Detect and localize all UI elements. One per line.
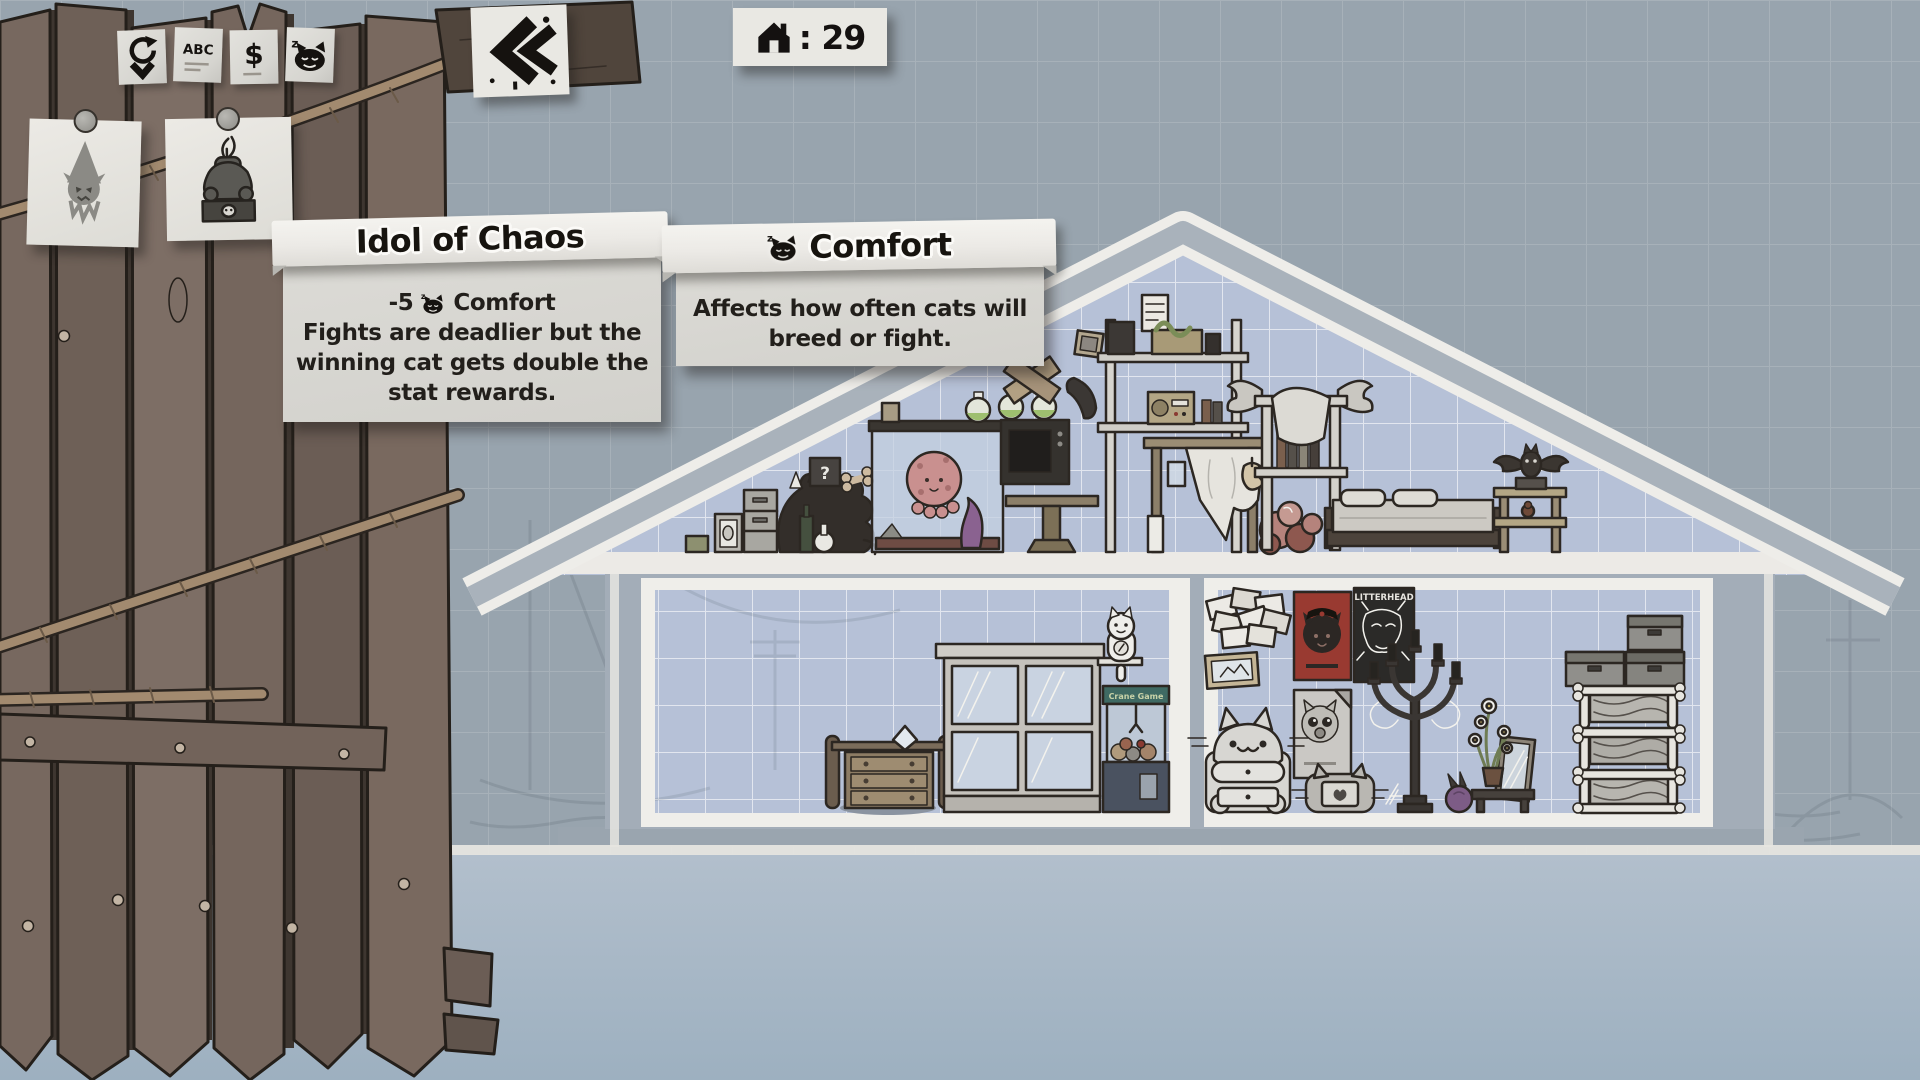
tooltip-stat-title: Comfort <box>809 225 952 265</box>
furniture-china-cabinet[interactable] <box>936 644 1104 812</box>
press-machine <box>1108 322 1134 354</box>
comfort-cat-icon: z <box>420 292 446 315</box>
furniture-file-cabinet[interactable] <box>744 490 777 552</box>
tooltip-item-desc: Fights are deadlier but the winning cat … <box>296 318 648 408</box>
draped-cloth <box>1272 388 1330 445</box>
tab-sort-alphabetical[interactable]: ABC <box>173 27 223 83</box>
tooltip-stat-body: Affects how often cats will breed or fig… <box>676 258 1044 366</box>
furniture-stove-cabinet[interactable] <box>1001 420 1069 484</box>
furniture-claw-machine[interactable]: Crane Game <box>1103 686 1169 812</box>
svg-text:z: z <box>291 36 298 50</box>
attic-floor-band <box>518 552 1848 574</box>
tab-sort-comfort[interactable]: z <box>285 27 335 83</box>
game-screen: ? <box>0 0 1920 1080</box>
furniture-small-picture-frame[interactable] <box>1205 652 1259 689</box>
milk-bottle <box>1148 516 1163 552</box>
furniture-mystery-box[interactable]: ? <box>810 458 840 486</box>
idol-statue-icon <box>176 128 282 230</box>
furniture-ghost-picture[interactable] <box>715 514 742 552</box>
sleeping-cat-icon: z <box>289 33 330 76</box>
furniture-bone-shelf[interactable] <box>1573 683 1685 813</box>
furniture-aquarium[interactable] <box>869 403 1006 552</box>
tab-sort-price[interactable]: $ <box>230 30 279 85</box>
stat-prefix: -5 <box>389 288 414 318</box>
tooltip-item-title: Idol of Chaos <box>355 217 584 261</box>
furniture-small-green-box[interactable] <box>686 536 708 552</box>
mystery-box-label: ? <box>820 464 830 484</box>
svg-text:ABC: ABC <box>183 41 214 58</box>
item-card-hooded-cat[interactable] <box>26 119 141 248</box>
house-icon <box>755 19 793 55</box>
hooded-cat-icon <box>47 134 121 232</box>
furniture-kitten-poster[interactable] <box>1294 690 1351 778</box>
house-counter: : 29 <box>733 8 887 66</box>
svg-text:z: z <box>767 234 773 245</box>
tooltip-item-statline: -5 z Comfort <box>389 288 556 318</box>
pin-icon <box>73 109 98 134</box>
tooltip-stat-desc: Affects how often cats will breed or fig… <box>693 294 1027 354</box>
back-button[interactable] <box>470 4 569 97</box>
house-foundation <box>558 827 1804 847</box>
claw-machine-marquee: Crane Game <box>1109 692 1164 701</box>
comfort-cat-icon: z <box>766 232 801 263</box>
pinned-scroll <box>1142 295 1168 331</box>
pin-icon <box>216 107 240 131</box>
circular-arrow-icon <box>121 33 163 80</box>
tooltip-item-body: -5 z Comfort Fights are deadlier but the… <box>283 252 661 422</box>
octopus <box>907 452 961 506</box>
furniture-revolutionary-cat-poster[interactable] <box>1294 592 1351 680</box>
svg-text:$: $ <box>244 38 264 71</box>
double-chevron-left-icon <box>476 10 565 93</box>
stat-name: Comfort <box>453 288 555 318</box>
furniture-litterhead-poster[interactable]: LITTERHEAD <box>1354 588 1414 682</box>
tooltip-stat-banner: z Comfort <box>662 219 1057 274</box>
dollar-label: $ <box>234 34 275 81</box>
house-counter-value: : 29 <box>799 18 866 57</box>
tab-sort-recent[interactable] <box>117 29 167 85</box>
abc-label: ABC <box>177 31 219 78</box>
tooltip-item-banner: Idol of Chaos <box>271 211 668 267</box>
